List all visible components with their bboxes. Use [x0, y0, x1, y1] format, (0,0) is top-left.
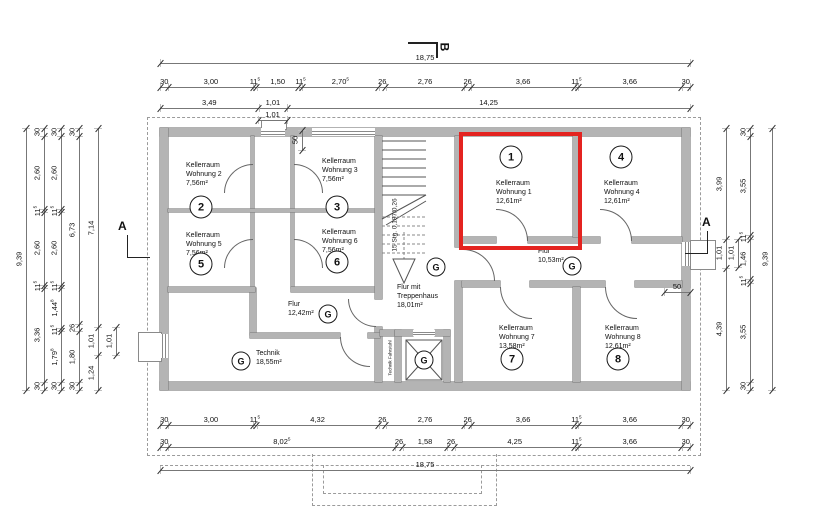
room-number-badge-2: 2 [190, 196, 213, 219]
wall [455, 281, 462, 382]
dim-label: 26 [68, 324, 77, 332]
window-line [413, 334, 435, 335]
wall [632, 237, 682, 243]
dim-label: 3,66 [516, 415, 531, 424]
section-line-a [707, 231, 708, 254]
dim-label: 115 [250, 77, 260, 87]
dim-label: 115 [571, 77, 581, 87]
dim-label: 3,55 [739, 179, 748, 194]
dim-label: 2,705 [332, 77, 349, 87]
dim-label: 2,60 [50, 241, 59, 256]
dim-line [160, 425, 690, 426]
section-line-a [127, 257, 150, 258]
dim-label: 30 [33, 128, 42, 136]
room-label-technik: Technik18,55m² [256, 349, 282, 367]
dim-label: 2,60 [50, 165, 59, 180]
drain-symbol: G [232, 352, 251, 371]
dim-label: 4,32 [310, 415, 325, 424]
dim-label: 26 [378, 77, 386, 86]
section-line-a [127, 235, 128, 258]
dim-line [116, 327, 117, 355]
dim-label: 26 [447, 437, 455, 446]
room-number-badge-4: 4 [610, 146, 633, 169]
wall [250, 288, 256, 335]
dim-label: 50 [291, 136, 300, 144]
room-number-badge-7: 7 [501, 348, 524, 371]
window-line [413, 332, 435, 333]
dim-label: 7,14 [87, 220, 96, 235]
room-number-badge-5: 5 [190, 253, 213, 276]
dim-label: 3,55 [739, 325, 748, 340]
dim-label: 4,25 [507, 437, 522, 446]
wall-opening [261, 128, 285, 136]
drain-symbol: G [415, 351, 434, 370]
dim-label: 3,00 [204, 415, 219, 424]
dim-label: 115 [250, 415, 260, 425]
dim-label: 30 [739, 382, 748, 390]
dim-label: 115 [49, 281, 59, 291]
dim-label: 2,60 [33, 241, 42, 256]
room-1-highlight[interactable] [459, 132, 582, 250]
dim-label: 115 [32, 205, 42, 215]
dim-label: 115 [571, 437, 581, 447]
dim-label: 115 [738, 276, 748, 286]
dim-line [26, 128, 27, 390]
floor-plan: 15 Stg. 0,187/0,26 Technik Fahrstuhl Kel… [0, 0, 817, 513]
dim-line [160, 447, 690, 448]
dim-label: 2,60 [33, 165, 42, 180]
dim-label: 3,36 [33, 327, 42, 342]
dim-label: 30 [739, 128, 748, 136]
room-label-8: KellerraumWohnung 812,61m² [605, 324, 641, 352]
dim-label: 30 [682, 437, 690, 446]
wall [435, 330, 450, 336]
dim-label: 115 [32, 281, 42, 291]
dim-label: 3,66 [622, 77, 637, 86]
dim-label: 14,25 [479, 98, 498, 107]
dim-line [79, 128, 80, 390]
dim-label: 26 [464, 77, 472, 86]
wall [291, 287, 380, 292]
window-line [312, 134, 375, 135]
window-line [162, 334, 163, 358]
dim-label: 1,01 [105, 334, 114, 349]
dim-label: 1,798 [49, 348, 59, 365]
section-marker-a-right: A [702, 215, 711, 229]
wall [168, 287, 255, 292]
dim-label: 26 [378, 415, 386, 424]
dim-label: 26 [395, 437, 403, 446]
dim-line [160, 87, 690, 88]
room-label-7: KellerraumWohnung 713,58m² [499, 324, 535, 352]
dim-label: 30 [33, 382, 42, 390]
window-line [261, 131, 285, 132]
window-line [261, 134, 285, 135]
wall [462, 281, 500, 287]
dim-line [160, 470, 690, 471]
wall [395, 330, 401, 382]
dim-label: 3,66 [622, 415, 637, 424]
dim-label: 115 [571, 415, 581, 425]
dim-label: 30 [68, 128, 77, 136]
wall [160, 382, 690, 390]
room-number-badge-8: 8 [607, 348, 630, 371]
dim-label: 2,76 [418, 77, 433, 86]
dim-line [160, 108, 690, 109]
light-well [690, 240, 716, 270]
dim-label: 9,39 [15, 252, 24, 267]
dim-label: 115 [295, 77, 305, 87]
dim-label: 30 [50, 382, 59, 390]
dim-label: 1,01 [265, 110, 280, 119]
section-line-a [685, 253, 708, 254]
dim-label: 3,49 [202, 98, 217, 107]
dim-label: 3,66 [516, 77, 531, 86]
dim-label: 1,50 [270, 77, 285, 86]
wall-opening [312, 128, 375, 136]
dim-label: 3,99 [715, 176, 724, 191]
dim-label: 30 [160, 437, 168, 446]
dim-label: 50 [673, 282, 681, 291]
wall [250, 333, 340, 338]
room-label-4: KellerraumWohnung 412,61m² [604, 179, 640, 207]
wall [395, 330, 413, 336]
stair-direction-arrow [393, 259, 415, 283]
room-label-3: KellerraumWohnung 37,56m² [322, 157, 358, 185]
wall [444, 330, 450, 382]
section-marker-b: B [437, 43, 451, 52]
dim-label: 2,76 [418, 415, 433, 424]
dim-label: 4,39 [715, 321, 724, 336]
drain-symbol: G [319, 305, 338, 324]
dim-label: 1,448 [49, 299, 59, 316]
dim-label: 1,80 [68, 349, 77, 364]
dim-label: 6,73 [68, 223, 77, 238]
dim-label: 3,66 [622, 437, 637, 446]
drain-symbol: G [427, 258, 446, 277]
room-number-badge-6: 6 [326, 251, 349, 274]
dim-label: 26 [464, 415, 472, 424]
dim-label: 3,00 [204, 77, 219, 86]
drain-symbol: G [563, 257, 582, 276]
window-line [312, 131, 375, 132]
room-label-2: KellerraumWohnung 27,56m² [186, 161, 222, 189]
dim-label: 115 [49, 205, 59, 215]
dim-label: 115 [49, 325, 59, 335]
dim-label: 30 [68, 382, 77, 390]
dim-label: 8,025 [273, 437, 290, 447]
dim-line [258, 120, 287, 121]
section-line-b [408, 42, 437, 44]
dim-line [302, 130, 303, 150]
stairs [381, 137, 427, 289]
window-line [165, 334, 166, 358]
dim-line [98, 128, 99, 390]
wall [160, 128, 690, 136]
wall [573, 287, 580, 382]
dim-label: 1,01 [715, 246, 724, 261]
room-number-badge-3: 3 [326, 196, 349, 219]
dim-line [44, 128, 45, 390]
dim-label: 1,01 [87, 334, 96, 349]
elevator-note: Technik Fahrstuhl [388, 340, 393, 375]
dim-label: 30 [160, 415, 168, 424]
dim-label: 1,58 [418, 437, 433, 446]
dim-label: 1,01 [266, 98, 281, 107]
dim-label: 18,75 [416, 53, 435, 62]
dim-line [772, 128, 773, 390]
light-well [138, 332, 162, 362]
dim-line [61, 128, 62, 390]
dim-label: 1,01 [727, 246, 736, 261]
dim-label: 9,39 [761, 252, 770, 267]
dim-line [160, 63, 690, 64]
dim-label: 1,24 [87, 365, 96, 380]
dim-label: 30 [160, 77, 168, 86]
dim-line [664, 292, 690, 293]
section-marker-a-left: A [118, 219, 127, 233]
stair-note: 15 Stg. 0,187/0,26 [392, 198, 399, 251]
dim-label: 30 [682, 415, 690, 424]
wall [380, 330, 395, 336]
dim-label: 30 [50, 128, 59, 136]
dim-line [750, 128, 751, 390]
dim-label: 18,75 [416, 460, 435, 469]
dim-label: 30 [682, 77, 690, 86]
wall [530, 281, 605, 287]
corridor-label-flur2: Flur12,42m² [288, 300, 314, 318]
